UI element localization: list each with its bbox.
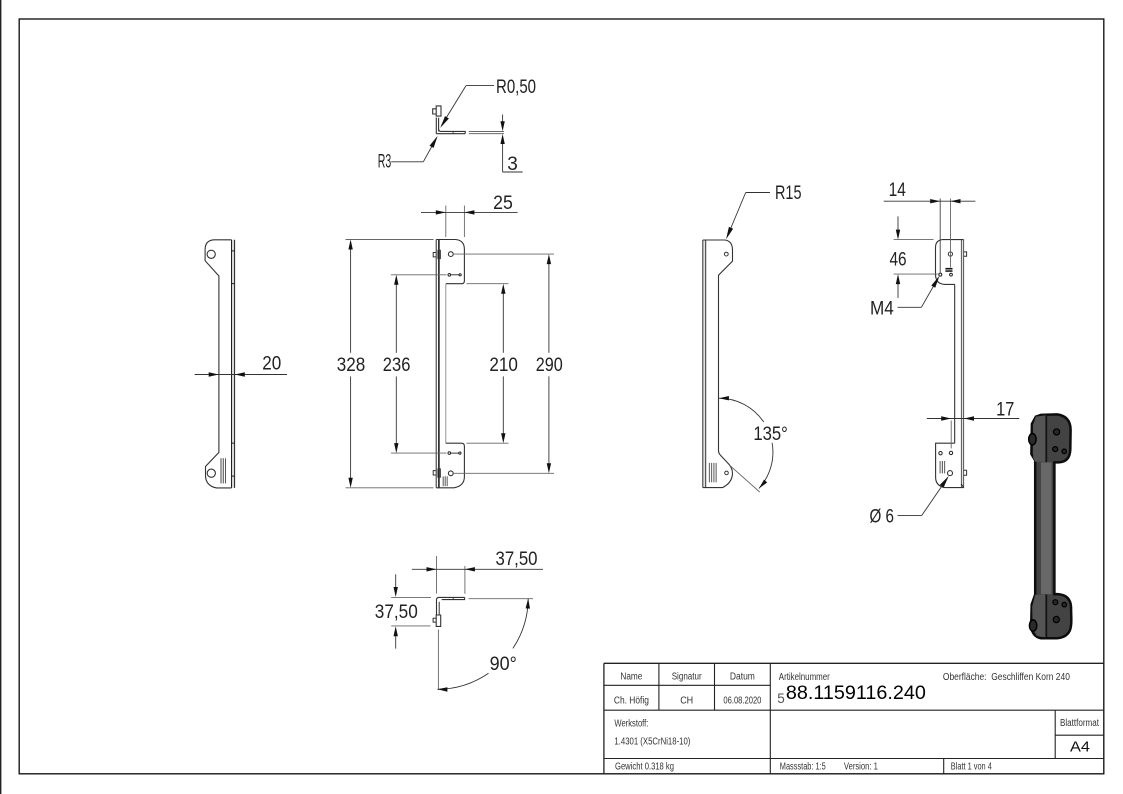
- svg-text:R15: R15: [775, 183, 802, 204]
- svg-text:CH: CH: [680, 695, 693, 706]
- svg-text:Gewicht 0.318 kg: Gewicht 0.318 kg: [615, 762, 674, 773]
- svg-text:Ch. Höfig: Ch. Höfig: [614, 695, 649, 706]
- svg-text:Datum: Datum: [730, 672, 755, 683]
- svg-text:5: 5: [777, 691, 785, 706]
- svg-text:236: 236: [383, 355, 411, 376]
- svg-text:Werkstoff:: Werkstoff:: [614, 719, 648, 730]
- svg-text:25: 25: [493, 193, 513, 214]
- svg-text:Oberfläche: Geschliffen Korn: Oberfläche: Geschliffen Korn 240: [943, 672, 1071, 683]
- svg-text:46: 46: [889, 249, 906, 270]
- svg-text:88.1159116.240: 88.1159116.240: [786, 682, 926, 704]
- svg-text:Blatt 1 von 4: Blatt 1 von 4: [951, 762, 992, 773]
- svg-text:135°: 135°: [753, 424, 788, 445]
- svg-text:R3: R3: [378, 151, 392, 172]
- svg-text:Blattformat: Blattformat: [1060, 718, 1099, 729]
- svg-text:90°: 90°: [490, 654, 517, 675]
- svg-text:14: 14: [889, 180, 907, 201]
- svg-text:328: 328: [337, 355, 366, 376]
- svg-text:20: 20: [262, 354, 281, 375]
- svg-text:Name: Name: [620, 672, 642, 683]
- svg-text:290: 290: [536, 355, 563, 376]
- svg-text:Ø 6: Ø 6: [870, 507, 895, 528]
- svg-text:37,50: 37,50: [375, 602, 418, 623]
- svg-text:R0,50: R0,50: [496, 77, 536, 98]
- svg-text:06.08.2020: 06.08.2020: [723, 695, 761, 706]
- svg-text:Version: 1: Version: 1: [844, 762, 878, 773]
- svg-text:Signatur: Signatur: [672, 672, 703, 683]
- svg-text:37,50: 37,50: [496, 549, 538, 570]
- svg-text:M4: M4: [870, 299, 894, 320]
- svg-text:Massstab: 1:5: Massstab: 1:5: [780, 762, 826, 773]
- svg-text:210: 210: [489, 355, 518, 376]
- svg-text:A4: A4: [1070, 740, 1090, 756]
- svg-text:3: 3: [507, 154, 518, 175]
- svg-text:1.4301 (X5CrNi18-10): 1.4301 (X5CrNi18-10): [614, 736, 690, 747]
- svg-text:17: 17: [996, 400, 1014, 421]
